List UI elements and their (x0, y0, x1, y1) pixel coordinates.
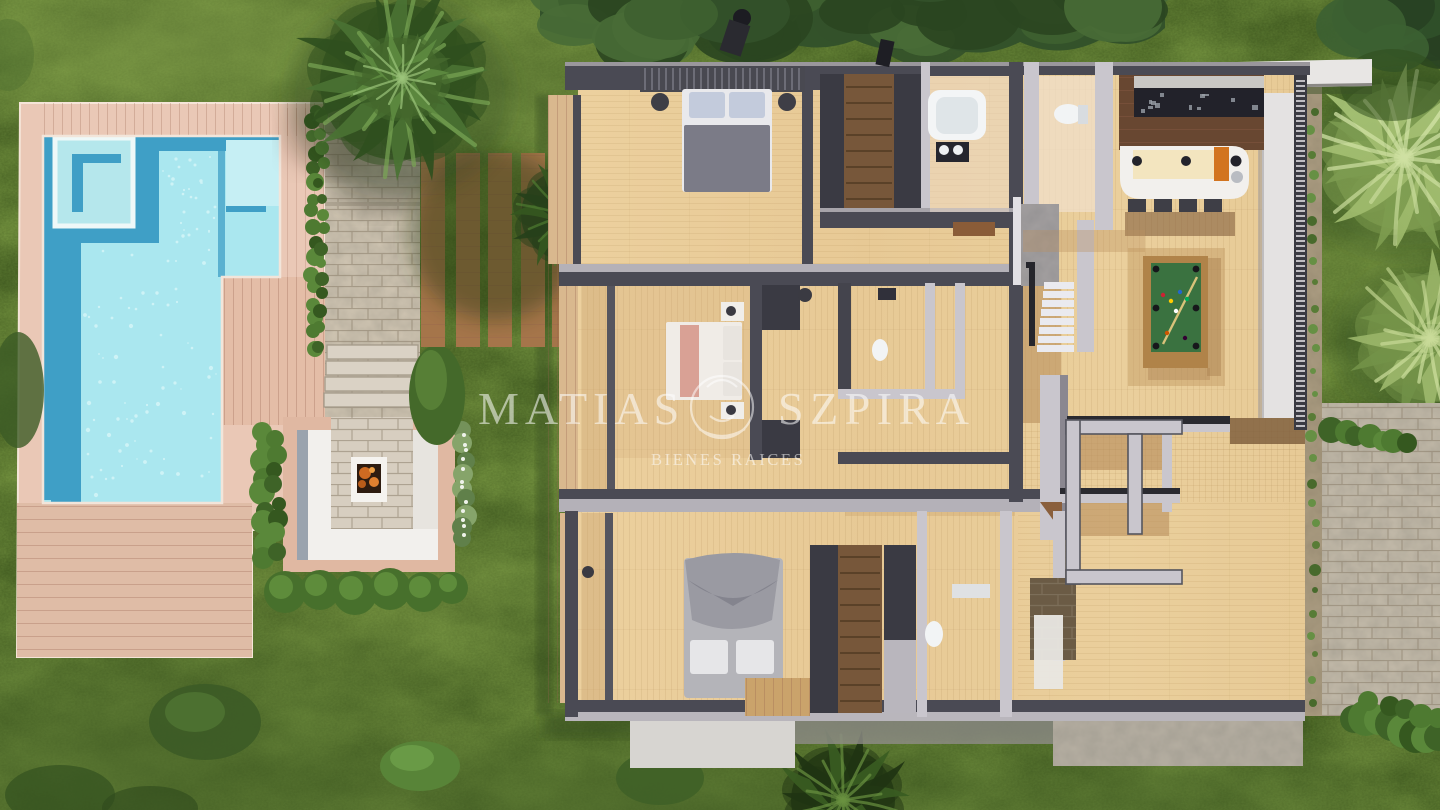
svg-text:MATIAS: MATIAS (478, 383, 685, 434)
svg-text:SZPIRA: SZPIRA (778, 383, 975, 434)
svg-text:BIENES RAICES: BIENES RAICES (651, 450, 805, 469)
